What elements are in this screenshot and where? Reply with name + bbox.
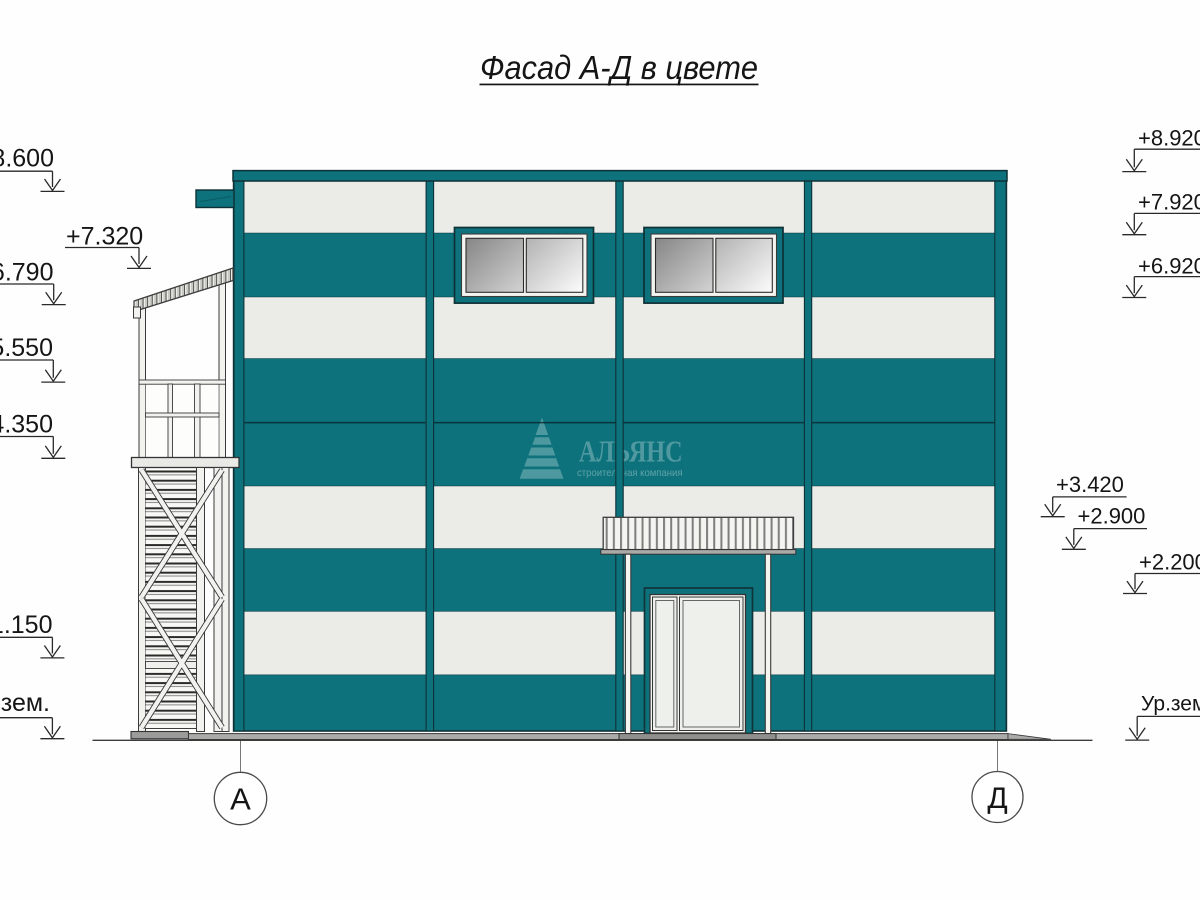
svg-text:+6.790: +6.790 (0, 259, 54, 287)
svg-text:+2.900: +2.900 (1078, 504, 1146, 529)
svg-text:Д: Д (987, 782, 1007, 815)
svg-text:Ур.зем.: Ур.зем. (0, 689, 50, 717)
svg-text:+5.550: +5.550 (0, 334, 53, 362)
svg-text:Ур.зем.: Ур.зем. (1141, 693, 1200, 716)
svg-text:А: А (230, 782, 251, 817)
svg-text:+7.920: +7.920 (1138, 189, 1200, 214)
svg-text:АЛЬЯНС: АЛЬЯНС (579, 434, 683, 469)
svg-text:+3.420: +3.420 (1056, 472, 1124, 497)
svg-text:+1.150: +1.150 (0, 611, 53, 639)
svg-text:+6.920: +6.920 (1138, 253, 1200, 278)
svg-text:+8.600: +8.600 (0, 145, 54, 173)
svg-text:+4.350: +4.350 (0, 411, 53, 439)
svg-text:Фасад А-Д в цвете: Фасад А-Д в цвете (480, 49, 758, 86)
svg-text:+7.320: +7.320 (66, 223, 143, 251)
svg-text:+8.920: +8.920 (1138, 125, 1200, 150)
svg-text:+2.200: +2.200 (1139, 550, 1200, 575)
svg-text:строительная компания: строительная компания (577, 467, 683, 479)
